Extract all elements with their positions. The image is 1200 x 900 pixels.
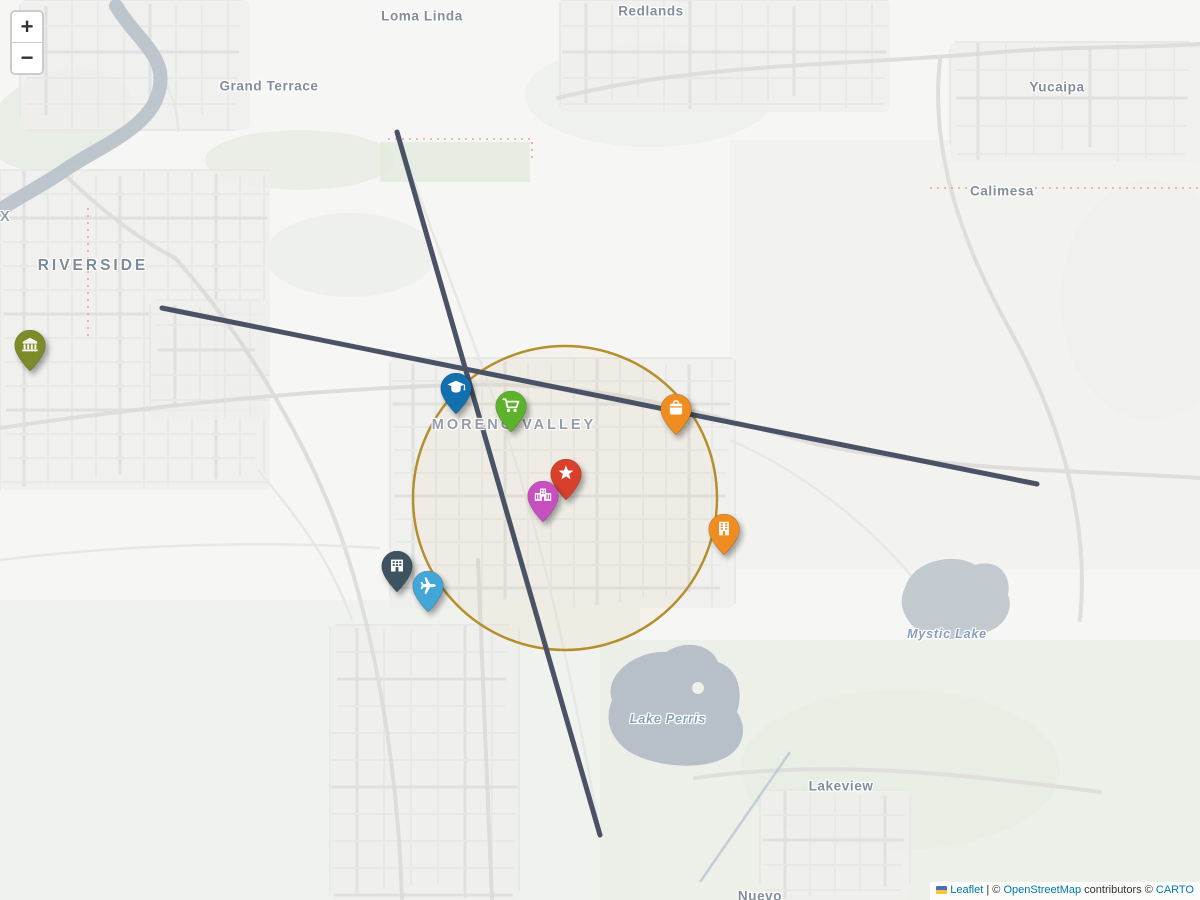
- university-marker[interactable]: [441, 373, 472, 414]
- carto-link[interactable]: CARTO: [1156, 884, 1194, 896]
- place-label-calimesa: Calimesa: [970, 184, 1034, 199]
- place-label-redlands: Redlands: [618, 4, 684, 19]
- zoom-in-button[interactable]: +: [12, 12, 42, 43]
- office-building-icon: [719, 522, 729, 536]
- map-tiles: [0, 0, 1200, 900]
- office-building-marker[interactable]: [709, 514, 740, 555]
- bank-marker[interactable]: [15, 330, 46, 371]
- zoom-out-button[interactable]: −: [12, 43, 42, 73]
- place-label-riverside: RIVERSIDE: [38, 257, 149, 275]
- map-canvas[interactable]: Loma LindaRedlandsGrand TerraceYucaipaCa…: [0, 0, 1200, 900]
- attribution-separator: |: [986, 884, 989, 896]
- attribution-bar: Leaflet | © OpenStreetMap contributors ©…: [930, 882, 1200, 900]
- place-label-loma-linda: Loma Linda: [381, 9, 463, 24]
- place-label-mystic-lake: Mystic Lake: [907, 627, 987, 641]
- company-marker[interactable]: [382, 551, 413, 592]
- building-icon: [391, 560, 403, 572]
- leaflet-link[interactable]: Leaflet: [950, 884, 983, 896]
- place-label-rubidoux-partial: RUBIDOUX: [0, 209, 13, 225]
- airport-marker[interactable]: [413, 571, 444, 612]
- place-label-lake-perris: Lake Perris: [630, 712, 706, 726]
- hospital-marker[interactable]: [528, 481, 559, 522]
- route-line-east-west[interactable]: [162, 308, 1037, 484]
- osm-copyright: ©: [992, 884, 1000, 896]
- supermarket-marker[interactable]: [496, 391, 527, 432]
- store-marker[interactable]: [661, 394, 692, 435]
- zoom-control: + −: [10, 10, 44, 75]
- osm-contributors: contributors: [1084, 884, 1141, 896]
- carto-copyright: ©: [1145, 884, 1153, 896]
- place-label-grand-terrace: Grand Terrace: [219, 79, 318, 94]
- place-label-nuevo: Nuevo: [738, 889, 782, 900]
- place-label-lakeview: Lakeview: [809, 779, 874, 794]
- openstreetmap-link[interactable]: OpenStreetMap: [1003, 884, 1081, 896]
- ukraine-flag-icon: [936, 886, 947, 894]
- place-label-yucaipa: Yucaipa: [1029, 80, 1084, 95]
